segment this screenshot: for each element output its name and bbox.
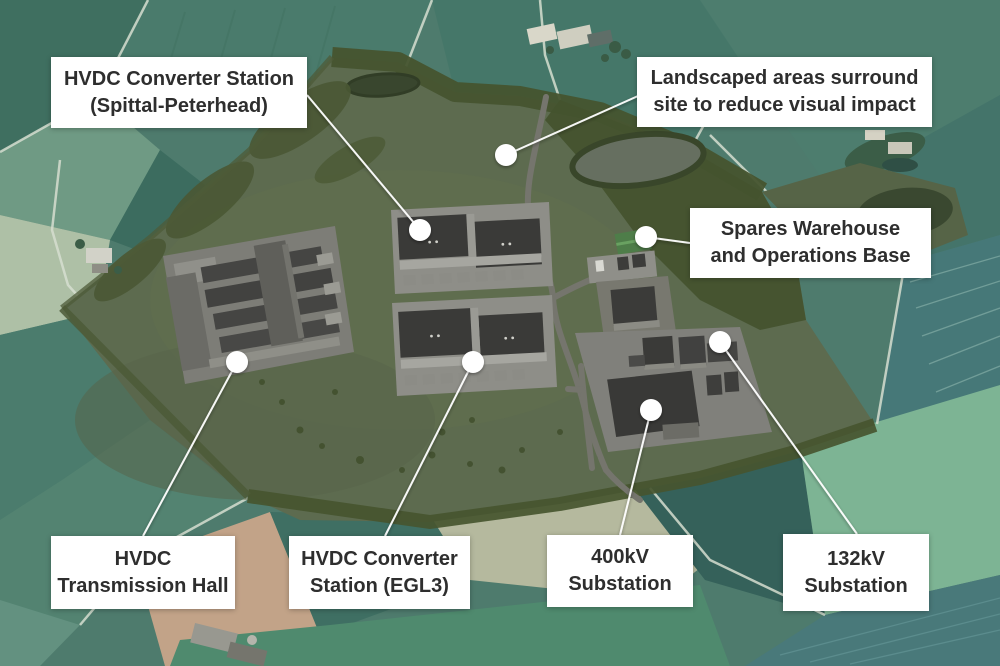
callout-text: (Spittal-Peterhead) xyxy=(90,93,268,120)
callout-text: Substation xyxy=(804,573,907,600)
hvdc-converter-station-spittal-building xyxy=(391,202,553,294)
callout-text: 400kV xyxy=(591,544,649,571)
callout-spares-warehouse: Spares Warehouse and Operations Base xyxy=(690,208,931,278)
callout-text: Substation xyxy=(568,571,671,598)
callout-text: Landscaped areas surround xyxy=(651,65,919,92)
marker-dot-132kv xyxy=(709,331,731,353)
marker-dot-spares xyxy=(635,226,657,248)
callout-landscaped-areas: Landscaped areas surround site to reduce… xyxy=(637,57,932,127)
callout-hvdc-transmission-hall: HVDC Transmission Hall xyxy=(51,536,235,609)
marker-dot-landscaped xyxy=(495,144,517,166)
marker-dot-egl3 xyxy=(462,351,484,373)
callout-text: HVDC xyxy=(115,546,172,573)
callout-hvdc-converter-station-egl3: HVDC Converter Station (EGL3) xyxy=(289,536,470,609)
hvdc-converter-station-egl3-building xyxy=(392,295,557,396)
callout-text: 132kV xyxy=(827,546,885,573)
callout-400kv-substation: 400kV Substation xyxy=(547,535,693,607)
callout-text: Transmission Hall xyxy=(57,573,228,600)
callout-text: HVDC Converter xyxy=(301,546,458,573)
callout-text: HVDC Converter Station xyxy=(64,66,294,93)
substation-complex-buildings xyxy=(575,327,772,452)
marker-dot-hall xyxy=(226,351,248,373)
aerial-site-render: HVDC Converter Station (Spittal-Peterhea… xyxy=(0,0,1000,666)
marker-dot-spittal xyxy=(409,219,431,241)
callout-hvdc-converter-station-spittal: HVDC Converter Station (Spittal-Peterhea… xyxy=(51,57,307,128)
callout-132kv-substation: 132kV Substation xyxy=(783,534,929,611)
marker-dot-400kv xyxy=(640,399,662,421)
callout-text: site to reduce visual impact xyxy=(653,92,915,119)
callout-text: and Operations Base xyxy=(710,243,910,270)
callout-text: Station (EGL3) xyxy=(310,573,449,600)
callout-text: Spares Warehouse xyxy=(721,216,900,243)
